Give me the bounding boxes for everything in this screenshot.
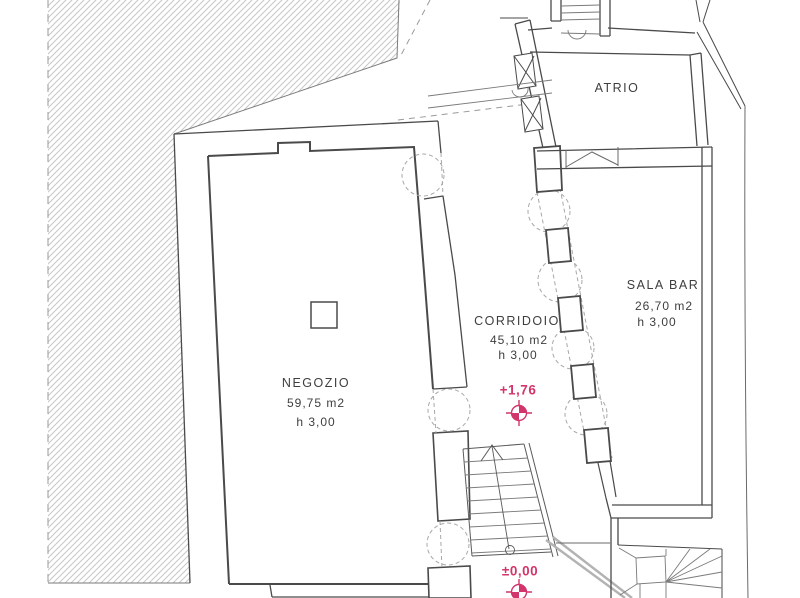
corridor-staircase xyxy=(463,443,558,557)
wall-pillars xyxy=(534,146,611,463)
room-label-corridoio: CORRIDOIO xyxy=(474,314,560,328)
room-label-sala-bar: SALA BAR xyxy=(627,278,699,292)
level-annotation-upper: +1,76 xyxy=(500,383,537,398)
column-symbol xyxy=(311,302,337,328)
winder-staircase xyxy=(619,548,722,598)
room-height-corridoio: h 3,00 xyxy=(498,348,537,362)
room-height-sala-bar: h 3,00 xyxy=(637,315,676,329)
level-annotation-ground: ±0,00 xyxy=(502,564,538,579)
entrance-steps xyxy=(561,5,600,39)
level-marker-icon xyxy=(506,400,532,426)
room-label-negozio: NEGOZIO xyxy=(282,376,350,390)
floor-plan: ATRIO NEGOZIO 59,75 m2 h 3,00 CORRIDOIO … xyxy=(0,0,800,598)
sala-bar-walls xyxy=(537,147,722,598)
negozio-walls xyxy=(174,121,471,598)
room-height-negozio: h 3,00 xyxy=(296,415,335,429)
ramp-edge xyxy=(546,537,632,598)
room-area-sala-bar: 26,70 m2 xyxy=(635,299,693,313)
site-boundary-line xyxy=(745,106,748,598)
room-area-corridoio: 45,10 m2 xyxy=(490,333,548,347)
room-area-negozio: 59,75 m2 xyxy=(287,396,345,410)
level-marker-icon xyxy=(506,579,532,598)
room-label-atrio: ATRIO xyxy=(595,81,640,95)
